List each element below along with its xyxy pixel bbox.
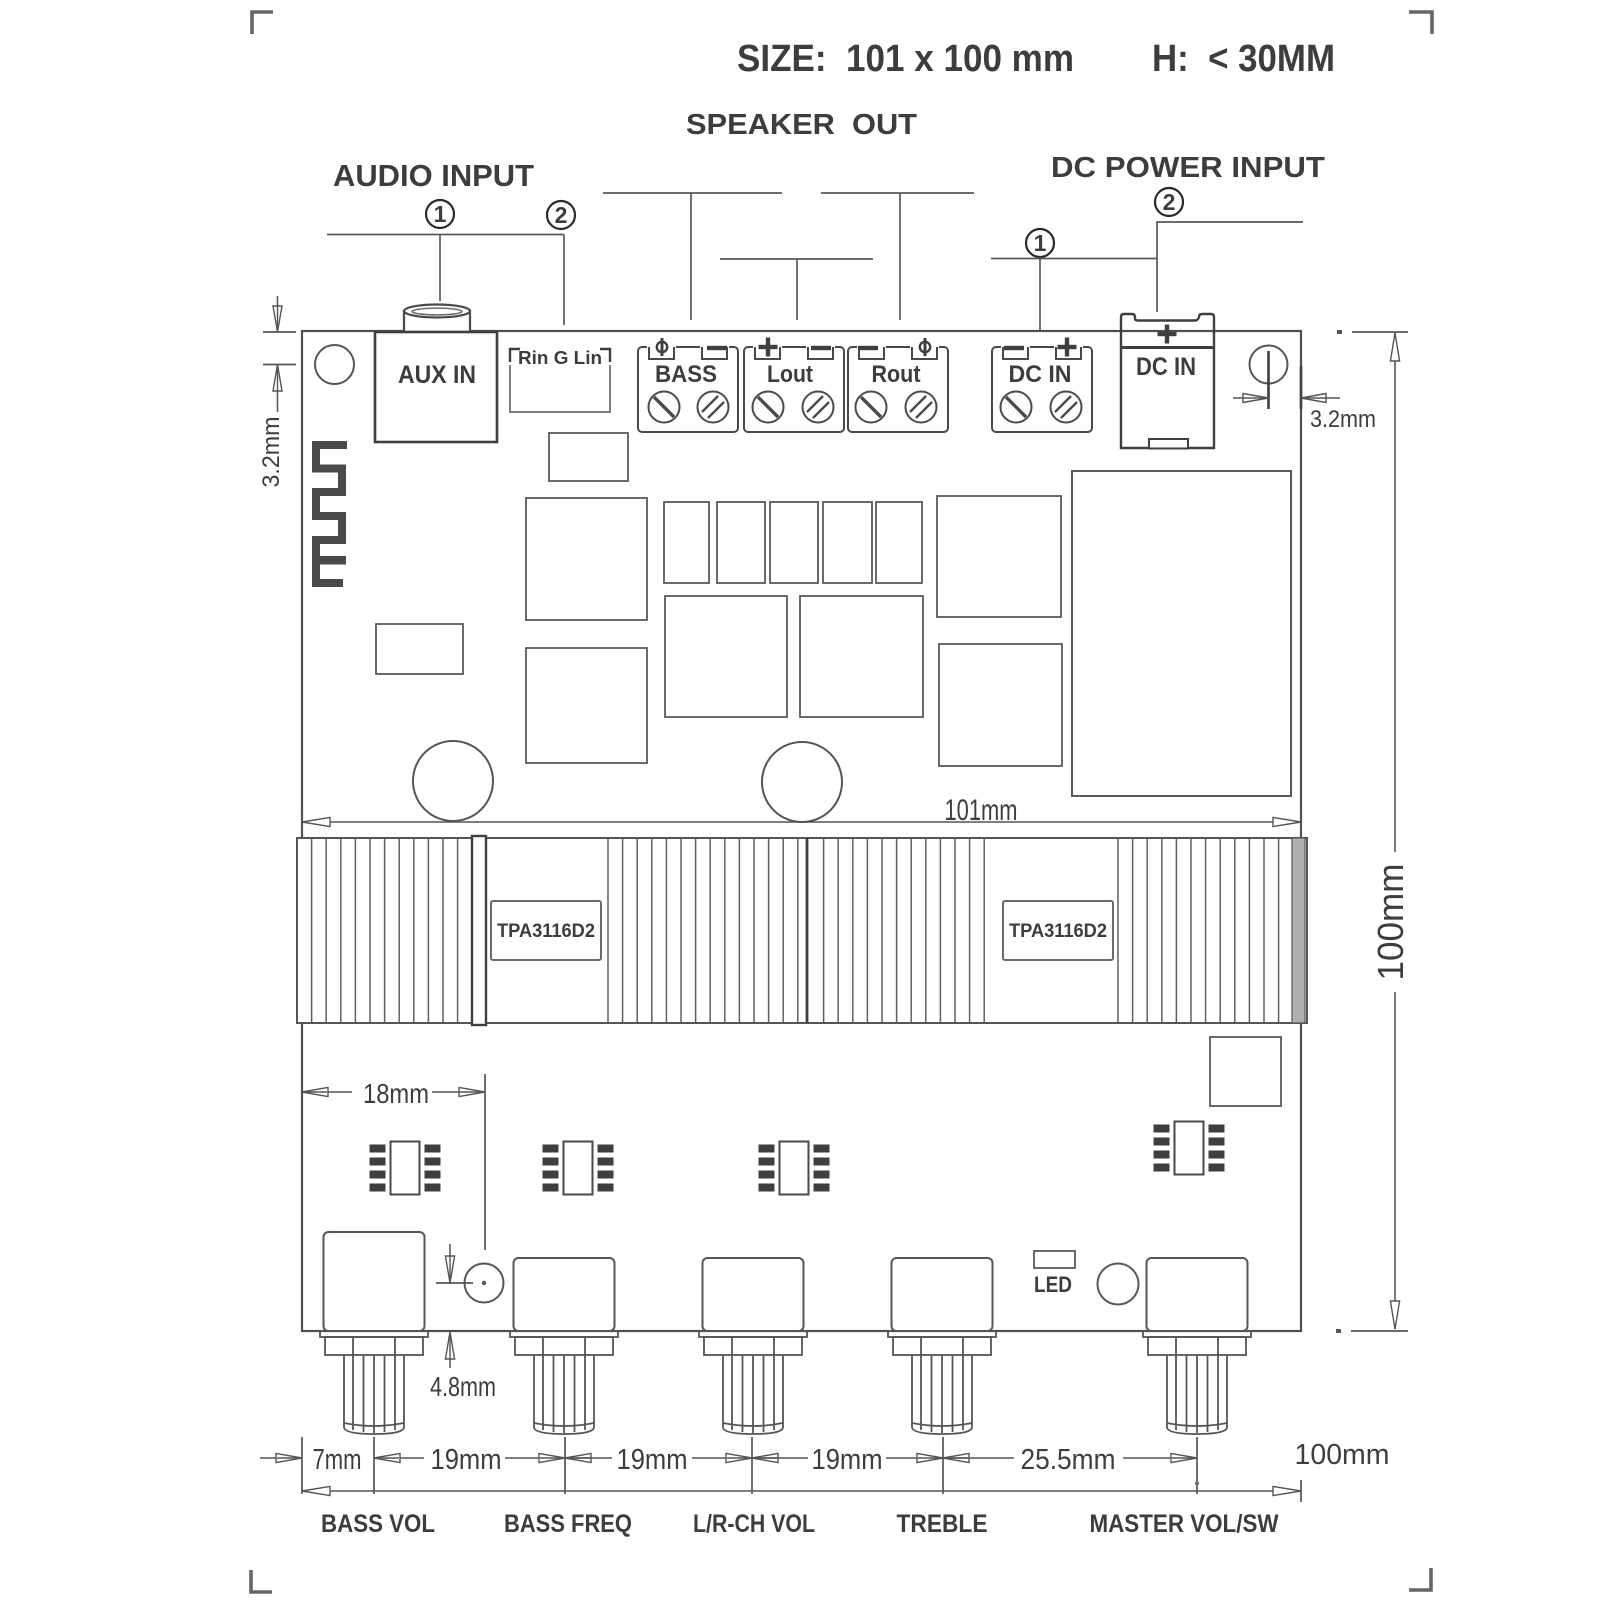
svg-text:1: 1 [434,201,447,227]
svg-text:TPA3116D2: TPA3116D2 [497,921,595,942]
svg-text:AUDIO INPUT: AUDIO INPUT [333,158,534,193]
svg-text:AUX IN: AUX IN [398,361,476,389]
svg-text:101mm: 101mm [945,794,1018,827]
svg-text:L/R-CH VOL: L/R-CH VOL [693,1510,815,1538]
svg-text:MASTER VOL/SW: MASTER VOL/SW [1090,1510,1279,1538]
svg-text:7mm: 7mm [313,1444,362,1476]
svg-text:18mm: 18mm [363,1078,429,1109]
svg-text:BASS FREQ: BASS FREQ [504,1510,632,1538]
svg-text:19mm: 19mm [617,1444,688,1476]
svg-text:19mm: 19mm [431,1444,502,1476]
svg-text:BASS: BASS [655,361,717,388]
svg-text:SIZE: 101 x 100 mm: SIZE: 101 x 100 mm [737,38,1074,80]
svg-text:DC IN: DC IN [1009,361,1072,388]
svg-text:LED: LED [1034,1272,1072,1297]
svg-text:TREBLE: TREBLE [897,1510,988,1538]
svg-text:Rout: Rout [872,361,921,388]
svg-text:100mm: 100mm [1295,1439,1390,1471]
svg-text:4.8mm: 4.8mm [430,1371,496,1402]
svg-text:100mm: 100mm [1370,864,1411,981]
svg-text:DC POWER INPUT: DC POWER INPUT [1051,152,1325,184]
svg-text:2: 2 [555,202,568,228]
svg-text:H: < 30MM: H: < 30MM [1152,38,1335,80]
svg-text:3.2mm: 3.2mm [1310,406,1376,433]
svg-text:2: 2 [1163,189,1176,215]
svg-text:25.5mm: 25.5mm [1021,1444,1116,1476]
svg-text:Lout: Lout [767,361,813,388]
svg-text:Rin G Lin: Rin G Lin [518,348,602,368]
svg-text:1: 1 [1034,230,1047,256]
svg-text:BASS VOL: BASS VOL [321,1510,435,1538]
svg-text:TPA3116D2: TPA3116D2 [1009,921,1107,942]
svg-text:19mm: 19mm [812,1444,883,1476]
svg-text:SPEAKER OUT: SPEAKER OUT [686,109,917,141]
svg-text:3.2mm: 3.2mm [258,417,285,488]
svg-text:DC IN: DC IN [1136,353,1196,381]
